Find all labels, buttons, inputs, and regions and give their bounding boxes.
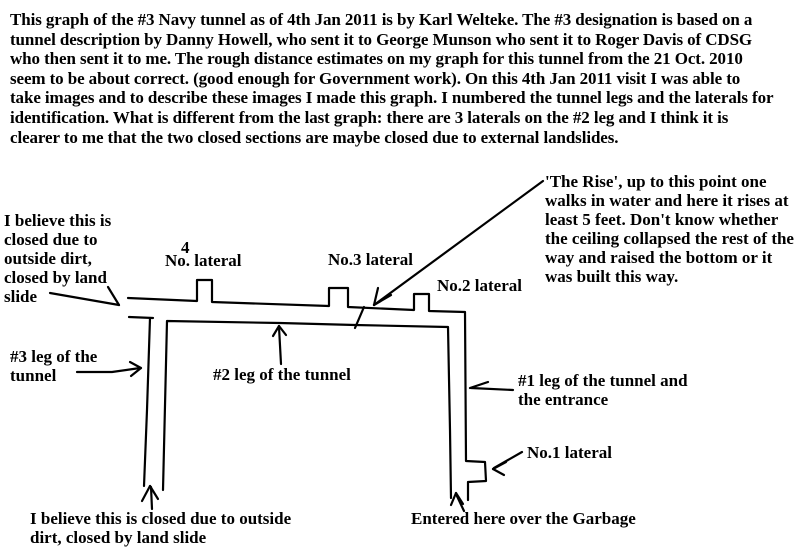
note-line: tunnel (10, 366, 97, 385)
closed-note-top-left: I believe this is closed due to outside … (4, 211, 111, 306)
lateral1-label-arrow (493, 452, 522, 475)
note-line: I believe this is (4, 211, 111, 230)
note-line: 'The Rise', up to this point one (545, 172, 794, 191)
note-line: the ceiling collapsed the rest of the (545, 229, 794, 248)
lateral-4-label: No. lateral (165, 251, 241, 270)
lateral-2-label: No.2 lateral (437, 276, 522, 295)
note-line: dirt, closed by land slide (30, 528, 291, 547)
closed-note-bottom: I believe this is closed due to outside … (30, 509, 291, 547)
lateral-1-label: No.1 lateral (527, 443, 612, 462)
note-line: #3 leg of the (10, 347, 97, 366)
note-line: slide (4, 287, 111, 306)
leg-2-label: #2 leg of the tunnel (213, 365, 351, 384)
note-line: I believe this is closed due to outside (30, 509, 291, 528)
leg2-label-arrow (273, 326, 286, 364)
leg3-bottom-arrow (142, 486, 158, 509)
lateral-3-label: No.3 lateral (328, 250, 413, 269)
leg3-left-wall (144, 318, 150, 486)
note-line: walks in water and here it rises at (545, 191, 794, 210)
note-line: the entrance (518, 390, 688, 409)
tunnel-top-wall-and-leg1-right-wall (128, 280, 486, 500)
tunnel-graph-page: This graph of the #3 Navy tunnel as of 4… (0, 0, 800, 553)
note-line: closed due to (4, 230, 111, 249)
leg1-label-arrow (470, 382, 513, 390)
note-line: way and raised the bottom or it (545, 248, 794, 267)
note-line: #1 leg of the tunnel and (518, 371, 688, 390)
note-line: least 5 feet. Don't know whether (545, 210, 794, 229)
leg3-right-wall-bottom-wall-leg1-left-wall (163, 321, 451, 498)
note-line: closed by land (4, 268, 111, 287)
leg-1-label: #1 leg of the tunnel and the entrance (518, 371, 688, 409)
note-line: was built this way. (545, 267, 794, 286)
entered-here-label: Entered here over the Garbage (411, 509, 636, 528)
rise-note: 'The Rise', up to this point one walks i… (545, 172, 794, 286)
note-line: outside dirt, (4, 249, 111, 268)
leg-3-label: #3 leg of the tunnel (10, 347, 97, 385)
